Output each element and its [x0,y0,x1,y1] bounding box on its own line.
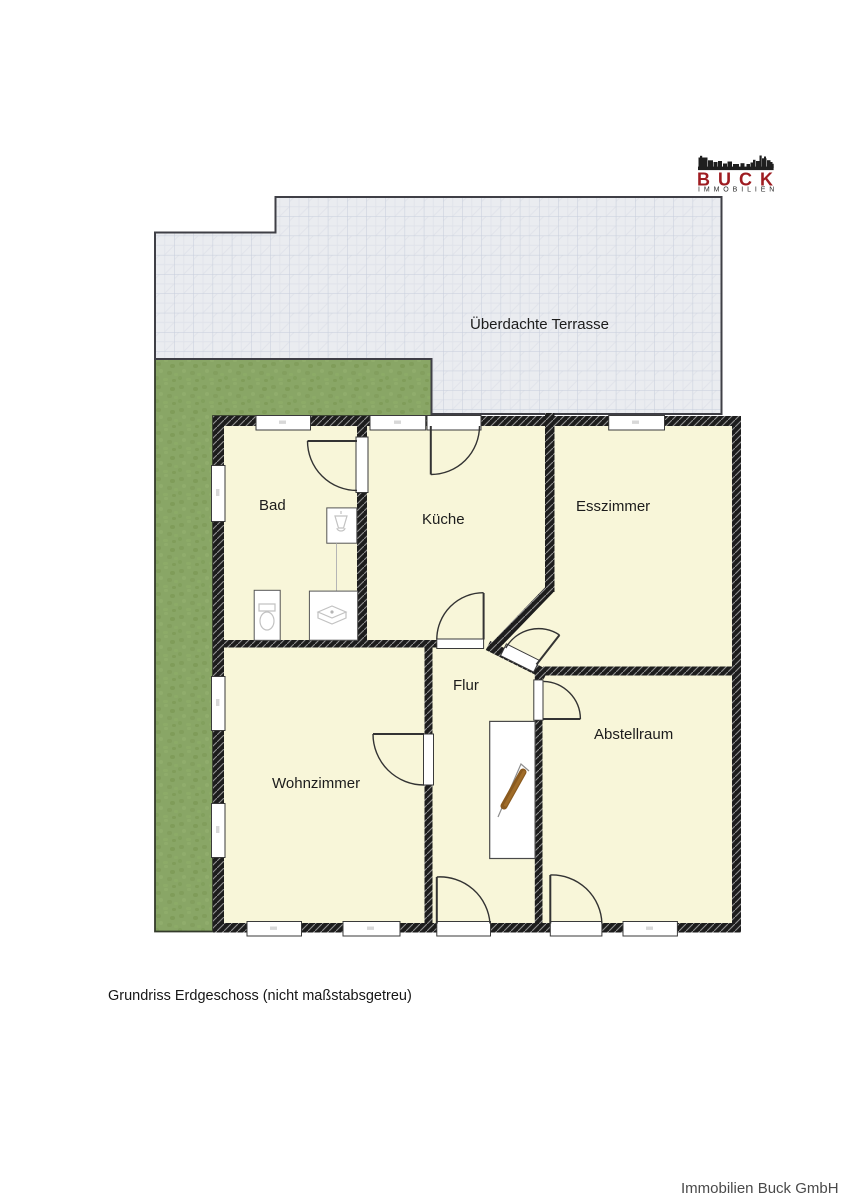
svg-text:Immobilien Buck GmbH: Immobilien Buck GmbH [681,1180,839,1197]
svg-text:Überdachte Terrasse: Überdachte Terrasse [470,315,609,333]
svg-text:Grundriss Erdgeschoss (nicht m: Grundriss Erdgeschoss (nicht maßstabsget… [108,988,412,1004]
svg-text:Bad: Bad [259,497,286,514]
svg-text:Esszimmer: Esszimmer [576,498,650,515]
svg-text:IMMOBILIEN: IMMOBILIEN [698,186,778,193]
svg-text:Abstellraum: Abstellraum [594,726,673,743]
svg-text:Küche: Küche [422,511,465,528]
svg-text:Flur: Flur [453,677,479,694]
svg-text:Wohnzimmer: Wohnzimmer [272,775,360,792]
